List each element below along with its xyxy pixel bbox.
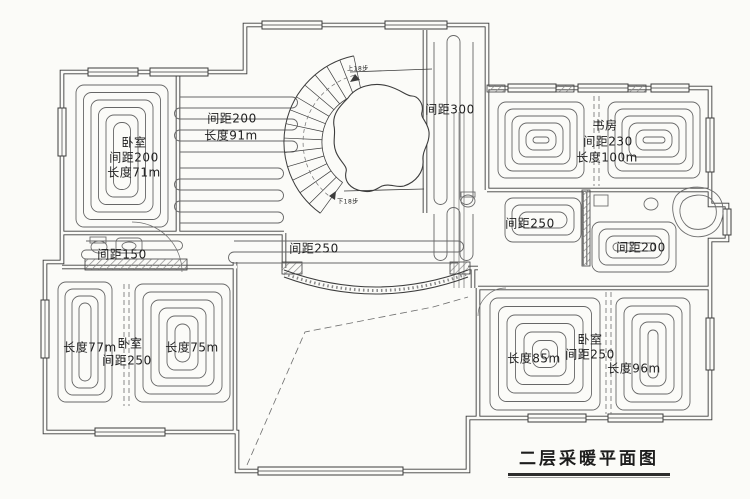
- drawing-title: 二层采暖平面图: [508, 444, 670, 476]
- label-stair-corridor-spacing: 间距300: [425, 103, 474, 117]
- heating-coil-spiral-loop: [498, 102, 584, 178]
- label-hallway-spacing: 间距200: [207, 112, 256, 126]
- label-stair-down-steps: 下18步: [337, 198, 359, 206]
- door-swing-arc: [478, 288, 506, 316]
- label-bedroom-tl-name: 卧室: [121, 135, 146, 150]
- stair-tread-line: [327, 66, 346, 99]
- label-study-name: 书房: [592, 118, 617, 133]
- heating-coil-spiral-loop: [526, 130, 556, 150]
- heating-coil-spiral-loop: [505, 109, 577, 171]
- bathroom-fixture: [644, 198, 658, 210]
- heating-coil-serpentine: [434, 36, 473, 205]
- label-bedroom-tl-length: 长度71m: [107, 165, 160, 180]
- heating-coil-spiral-loop: [616, 298, 690, 410]
- balcony-and-void-layer: [247, 270, 468, 465]
- label-study-length: 长度100m: [576, 150, 638, 165]
- balcony-wall-hatch: [284, 274, 468, 291]
- heating-plan-page: 卧室间距200长度71m间距200长度91m间距150间距250间距300书房间…: [0, 0, 750, 499]
- heating-coil-serpentine: [229, 241, 464, 263]
- label-corridor-left-spacing: 间距150: [97, 248, 146, 262]
- label-bedroom-bl-length-right: 长度75m: [165, 340, 218, 355]
- label-bedroom-bl-spacing: 间距250: [102, 354, 151, 368]
- label-stair-up-steps: 上18步: [347, 65, 369, 73]
- heating-coil-spiral-loop: [533, 137, 549, 143]
- heating-coil-serpentine: [175, 168, 284, 223]
- label-bath-right2-spacing: 间距200: [616, 241, 665, 255]
- label-bedroom-br-name: 卧室: [577, 332, 602, 347]
- label-hallway-length: 长度91m: [204, 128, 257, 143]
- heating-coil-spiral-loop: [640, 322, 666, 386]
- heating-coil-spiral-loop: [632, 314, 674, 394]
- label-bedroom-bl-length-left: 长度77m: [63, 340, 116, 355]
- stair-tread-line: [296, 97, 329, 116]
- label-bedroom-tl-spacing: 间距200: [109, 151, 158, 165]
- label-bedroom-br-length-left: 长度85m: [507, 351, 560, 366]
- label-bedroom-br-spacing: 间距250: [565, 348, 614, 362]
- hatched-wall: [487, 85, 505, 92]
- stair-direction-arrow: [329, 191, 336, 200]
- label-study-spacing: 间距230: [583, 135, 632, 149]
- hatched-wall: [628, 85, 646, 92]
- bathroom-fixture: [594, 195, 608, 206]
- label-bath-right-spacing: 间距250: [505, 217, 554, 231]
- balcony-curved-wall: [284, 277, 468, 294]
- label-hall-center-spacing: 间距250: [289, 242, 338, 256]
- heating-coil-serpentine: [434, 208, 473, 261]
- balcony-curved-wall: [284, 270, 468, 287]
- drawing-title-block: 二层采暖平面图: [508, 444, 670, 478]
- heating-coil-spiral-loop: [636, 130, 672, 150]
- heating-coil-spiral-loop: [643, 137, 665, 143]
- void-opening-dashed-line: [247, 297, 468, 465]
- label-bedroom-bl-name: 卧室: [117, 336, 142, 351]
- label-bedroom-br-length-right: 长度96m: [607, 361, 660, 376]
- stair-core-curved-wall: [334, 85, 429, 192]
- floor-plan-drawing: 卧室间距200长度71m间距200长度91m间距150间距250间距300书房间…: [0, 0, 750, 499]
- title-underline: [508, 477, 670, 478]
- heating-coil-spiral-loop: [624, 306, 682, 402]
- spiral-staircase: [284, 56, 432, 213]
- hatched-wall: [556, 85, 574, 92]
- stair-tread-line: [305, 85, 334, 110]
- stair-tread-line: [288, 156, 324, 167]
- hatched-wall: [282, 262, 302, 274]
- hatched-wall: [450, 262, 470, 274]
- hatched-wall: [582, 190, 590, 266]
